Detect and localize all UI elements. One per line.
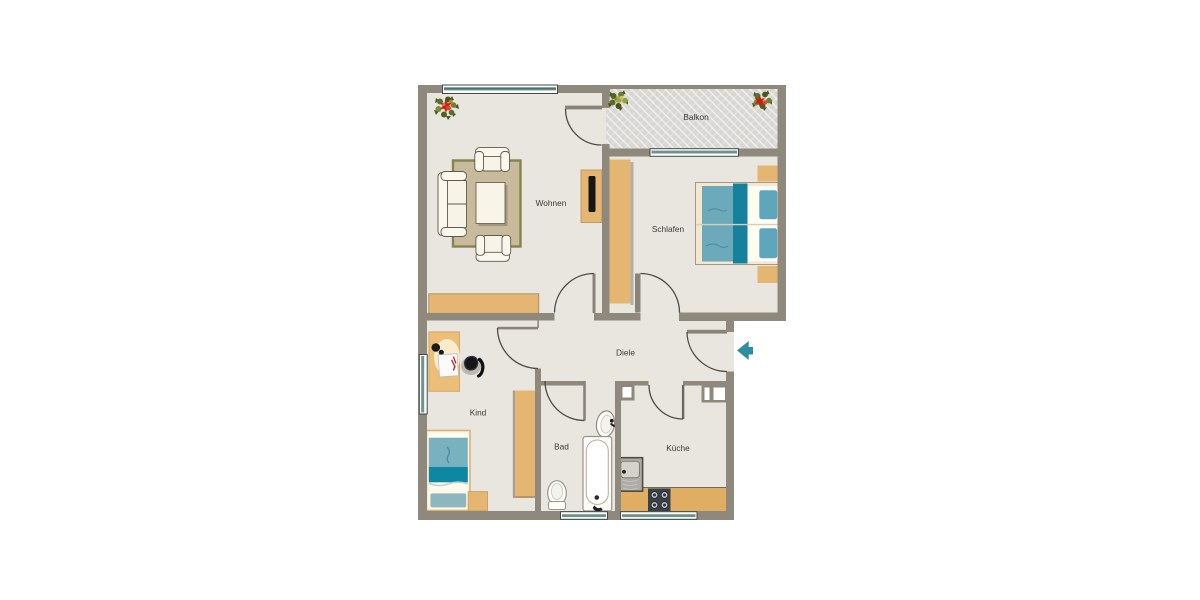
svg-text:Schlafen: Schlafen — [652, 224, 685, 234]
svg-text:Balkon: Balkon — [683, 112, 709, 122]
svg-text:Diele: Diele — [616, 348, 635, 358]
svg-text:Kind: Kind — [470, 408, 487, 418]
svg-text:Wohnen: Wohnen — [536, 198, 567, 208]
svg-text:Küche: Küche — [666, 443, 690, 453]
svg-text:Bad: Bad — [554, 442, 569, 452]
